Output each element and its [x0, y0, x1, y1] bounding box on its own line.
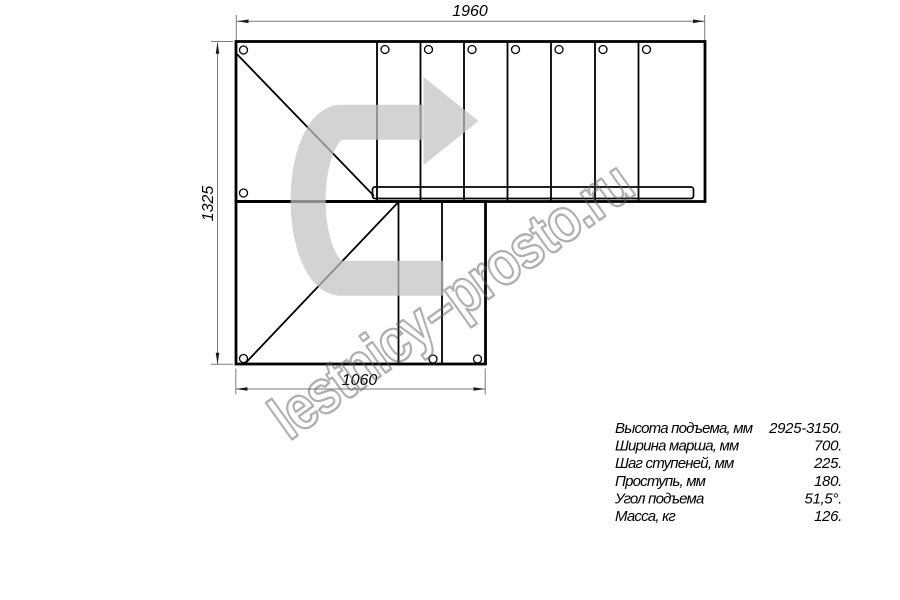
svg-text:225.: 225. — [813, 455, 842, 472]
svg-text:126.: 126. — [814, 508, 842, 525]
svg-text:2925-3150.: 2925-3150. — [768, 420, 842, 437]
svg-text:700.: 700. — [814, 438, 842, 455]
svg-text:Масса, кг: Масса, кг — [615, 508, 676, 525]
svg-text:1960: 1960 — [452, 3, 488, 20]
svg-text:Шаг ступеней, мм: Шаг ступеней, мм — [615, 455, 734, 472]
svg-text:Ширина марша, мм: Ширина марша, мм — [615, 438, 739, 455]
svg-text:1325: 1325 — [200, 186, 217, 222]
svg-text:Проступь, мм: Проступь, мм — [615, 473, 706, 490]
svg-text:Угол подъема: Угол подъема — [614, 490, 704, 507]
svg-text:Высота подъема, мм: Высота подъема, мм — [615, 420, 753, 437]
svg-text:51,5°.: 51,5°. — [804, 490, 842, 507]
svg-text:180.: 180. — [814, 473, 842, 490]
